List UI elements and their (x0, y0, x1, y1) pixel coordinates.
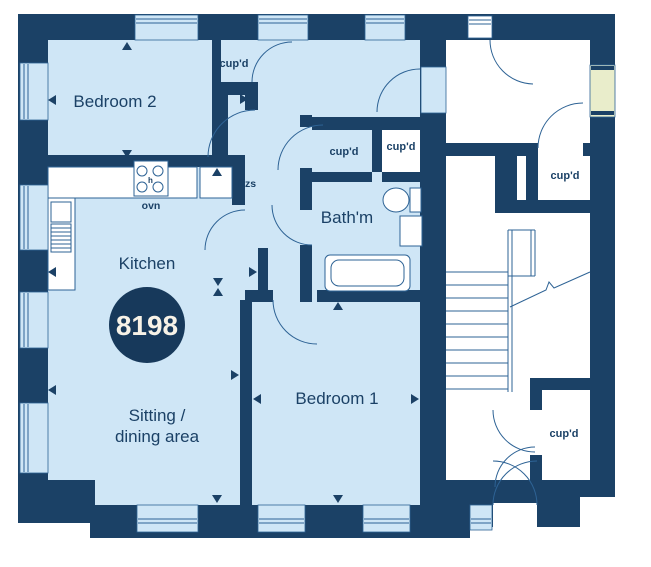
sitting-label-line2: dining area (115, 427, 200, 446)
communal-hall (446, 40, 590, 143)
toilet-bowl (383, 188, 409, 212)
bath-left-cupboard-label: cup'd (330, 146, 359, 158)
sitting-label-line1: Sitting / (129, 406, 186, 425)
sink-drainer (51, 224, 71, 252)
sink-basin (51, 202, 71, 222)
communal-entrance-door (468, 16, 492, 38)
fridge-freezer-label: ffzs (238, 178, 256, 190)
hob-label: h (148, 176, 153, 185)
flat-entrance-door (421, 67, 446, 113)
window-highlighted (590, 65, 615, 117)
kitchen-counter-top (48, 167, 197, 198)
bath-right-cupboard-label: cup'd (387, 141, 416, 153)
bathroom-label: Bath'm (321, 208, 373, 227)
bedroom1-label: Bedroom 1 (295, 389, 378, 408)
oven-label: ovn (142, 200, 161, 212)
floor-plan-page: h (0, 0, 651, 567)
bathtub-inner (331, 260, 404, 286)
plot-number-badge: 8198 (109, 287, 185, 363)
bedroom2-label: Bedroom 2 (73, 92, 156, 111)
stair-upper-landing (446, 156, 495, 213)
communal-top-cupboard-label: cup'd (551, 170, 580, 182)
toilet-cistern (410, 188, 421, 212)
kitchen-label: Kitchen (119, 254, 176, 273)
sliver (517, 156, 526, 200)
communal-bottom-cupboard-label: cup'd (550, 428, 579, 440)
plot-number: 8198 (116, 310, 178, 341)
hall-cupboard-label: cup'd (220, 58, 249, 70)
wash-basin (400, 216, 422, 246)
floor-plan: h (0, 0, 651, 567)
